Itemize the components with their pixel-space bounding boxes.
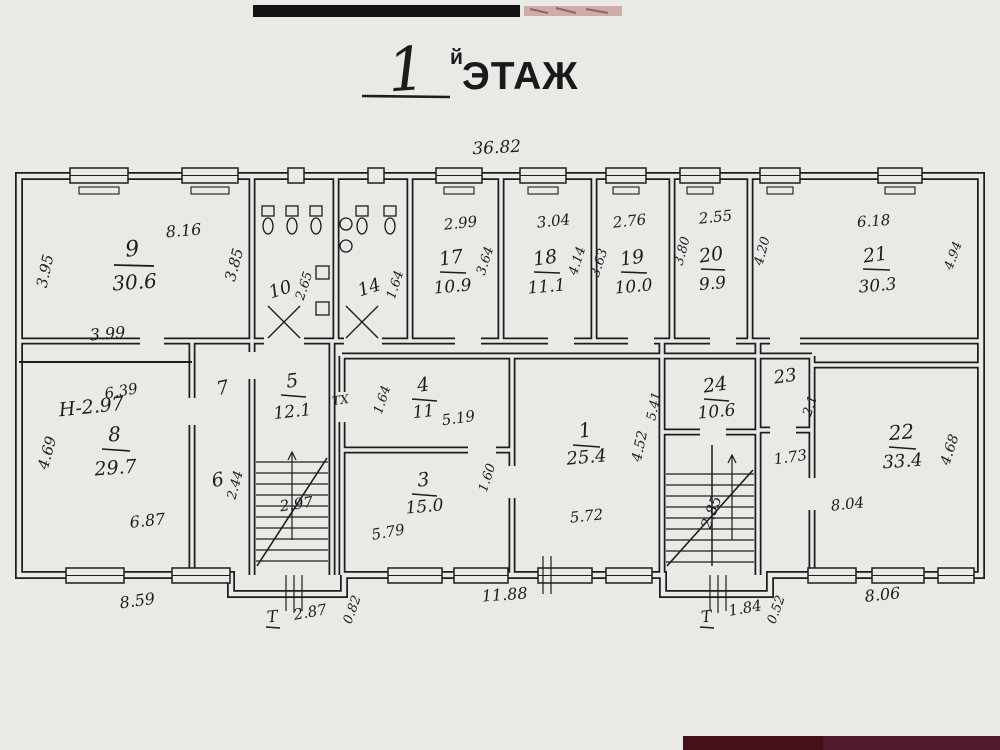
stair-left-dim: 2.97 (278, 493, 315, 516)
dim-porch-right-width: 1.84 (727, 596, 763, 620)
room-9-dim-left: 3.95 (33, 253, 58, 289)
room-1-label: 1 25.4 4.52 5.72 (565, 417, 652, 526)
room-24-number: 24 (701, 372, 729, 397)
room-4-dim-bottom: 5.19 (441, 407, 477, 430)
title-block: 1 й ЭТАЖ (362, 34, 579, 106)
room-14-dim-side: 1.64 (384, 269, 407, 301)
room-10-label: 10 2.65 (266, 270, 316, 303)
dim-bottom-right: 8.06 (864, 583, 901, 606)
room-4-dim-left: 1.64 (371, 384, 394, 416)
room-20-area: 9.9 (698, 273, 727, 295)
walls-inner (19, 176, 981, 594)
room-17-number: 17 (438, 245, 466, 270)
room-3-label: 3 15.0 5.79 1.60 (370, 462, 499, 544)
bottom-dimensions: 8.59 Т 2.87 0.82 11.88 Т 1.84 0.52 8.06 (118, 583, 901, 628)
room-9-number: 9 (124, 236, 141, 262)
room-9-dim-bottom: 3.99 (89, 323, 126, 345)
room-9-area: 30.6 (111, 268, 157, 295)
room-4-label: 4 11 1.64 5.19 (371, 373, 476, 429)
room-20-number: 20 (697, 242, 725, 267)
room-6-label: 6 2.44 (210, 468, 247, 502)
stair-right-dim: 2.85 (697, 494, 726, 532)
room-14-label: 14 1.64 (355, 269, 407, 301)
room-10-number: 10 (266, 276, 294, 303)
room-24-label: 24 10.6 5.41 (644, 372, 736, 423)
room-23-dim-right: 2.1 (800, 394, 821, 419)
room-7-number: 7 (215, 376, 232, 400)
room-18-dim-top: 3.04 (536, 210, 571, 231)
room-3-dim-bottom: 5.79 (370, 520, 406, 544)
room-6-number: 6 (210, 468, 226, 492)
room-8-dim-bottom: 6.87 (129, 509, 167, 532)
windows (66, 168, 974, 583)
room-22-area: 33.4 (882, 450, 923, 474)
room-19-label: 19 10.0 2.76 3.63 (588, 210, 653, 298)
room-8-dim-left: 4.69 (34, 434, 60, 472)
room-20-label: 20 9.9 2.55 3.80 (672, 206, 733, 295)
room-22-label: 22 33.4 4.68 8.04 (830, 419, 963, 515)
dim-bottom-center: 11.88 (481, 583, 528, 605)
room-17-dim-top: 2.99 (442, 212, 479, 234)
room-4-number: 4 (415, 373, 431, 397)
radiators (79, 187, 915, 194)
room-17-area: 10.9 (433, 275, 473, 298)
dim-building-width: 36.82 (472, 137, 522, 160)
room-21-dim-right: 4.94 (941, 240, 965, 273)
toilet-icon (262, 206, 396, 234)
room-17-dim-right: 3.64 (474, 245, 497, 277)
room-3-number: 3 (416, 468, 430, 491)
title-floor-suffix: й (450, 46, 463, 69)
dim-porch-left-width: 2.87 (291, 600, 328, 624)
room-18-dim-right: 4.14 (566, 245, 590, 278)
wc-fixtures (262, 206, 396, 338)
room-19-area: 10.0 (614, 275, 654, 298)
room-8-number: 8 (107, 422, 121, 447)
room-5-area: 12.1 (273, 400, 313, 424)
title-underline (362, 96, 450, 97)
room-18-area: 11.1 (527, 275, 566, 298)
dim-porch-left-depth: 0.82 (341, 594, 365, 626)
wc-door-swings (268, 306, 378, 338)
room-24-area: 10.6 (697, 400, 737, 423)
floor-plan-drawing: 1 й ЭТАЖ (0, 0, 1000, 750)
dim-porch-right-depth: 0.52 (765, 594, 789, 626)
room-1-dim-right: 4.52 (629, 429, 651, 464)
room-8-label: H-2.97 6.39 8 29.7 4.69 6.87 (34, 379, 167, 532)
room-1-area: 25.4 (565, 445, 608, 470)
room-20-dim-top: 2.55 (697, 206, 733, 227)
dim-bottom-left: 8.59 (118, 589, 156, 613)
room-21-area: 30.3 (858, 274, 897, 297)
room-21-dim-left: 4.20 (751, 235, 773, 268)
room-8-dim-top: 6.39 (103, 379, 139, 403)
entrance-label-right: Т (700, 606, 714, 626)
room-3-dim-right: 1.60 (476, 462, 499, 494)
shaft-label: ТХ (331, 392, 350, 408)
room-5-label: 5 12.1 2.97 (273, 369, 315, 515)
room-1-dim-bottom: 5.72 (569, 505, 604, 526)
room-22-dim-bottom: 8.04 (830, 493, 865, 514)
room-23-dim-bottom: 1.73 (773, 446, 809, 468)
room-18-label: 18 11.1 3.04 4.14 (527, 210, 589, 298)
room-19-dim-top: 2.76 (611, 210, 648, 232)
room-22-dim-right: 4.68 (937, 432, 962, 468)
room-21-dim-top: 6.18 (856, 211, 891, 231)
room-10-dim-side: 2.65 (293, 270, 317, 303)
room-9-dim-right: 3.85 (221, 246, 247, 283)
room-9-dim-top: 8.16 (165, 220, 202, 242)
room-14-number: 14 (355, 274, 383, 301)
title-floor-word: ЭТАЖ (462, 55, 579, 98)
room-19-number: 19 (619, 245, 646, 270)
redaction-bar-top (253, 5, 622, 17)
room-21-number: 21 (861, 242, 889, 267)
room-21-label: 21 30.3 6.18 4.20 4.94 (751, 211, 965, 298)
room-3-area: 15.0 (405, 495, 445, 518)
room-9-label: 9 30.6 8.16 3.95 3.85 3.99 (33, 220, 247, 345)
room-1-number: 1 (577, 417, 593, 443)
entrance-label-left: Т (266, 606, 280, 626)
room-18-number: 18 (532, 245, 559, 270)
room-22-number: 22 (887, 419, 915, 445)
room-17-label: 17 10.9 2.99 3.64 (433, 212, 497, 298)
room-6-dim-side: 2.44 (224, 469, 246, 502)
room-8-area: 29.7 (93, 456, 139, 481)
room-4-area: 11 (412, 401, 436, 423)
door-openings (140, 334, 819, 582)
room-23-number: 23 (771, 365, 798, 389)
maroon-bar-bottom (683, 736, 1000, 750)
room-5-number: 5 (285, 369, 300, 392)
